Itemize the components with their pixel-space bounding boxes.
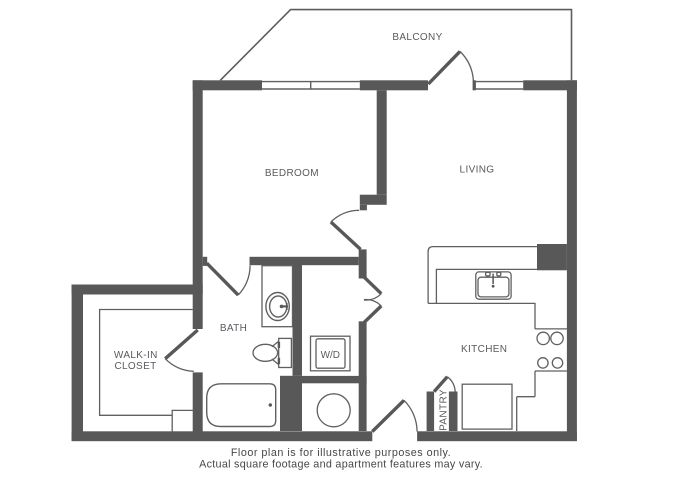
svg-text:Actual square footage and apar: Actual square footage and apartment feat… — [199, 458, 483, 470]
svg-text:BALCONY: BALCONY — [392, 32, 442, 43]
svg-text:BEDROOM: BEDROOM — [265, 168, 319, 179]
svg-text:PANTRY: PANTRY — [439, 389, 450, 431]
svg-text:WALK-IN: WALK-IN — [114, 350, 158, 361]
svg-text:KITCHEN: KITCHEN — [461, 344, 507, 355]
svg-text:W/D: W/D — [321, 350, 340, 361]
svg-text:LIVING: LIVING — [460, 164, 495, 175]
svg-text:Floor plan is for illustrative: Floor plan is for illustrative purposes … — [231, 447, 451, 459]
svg-text:BATH: BATH — [220, 323, 247, 334]
svg-text:CLOSET: CLOSET — [114, 361, 156, 372]
